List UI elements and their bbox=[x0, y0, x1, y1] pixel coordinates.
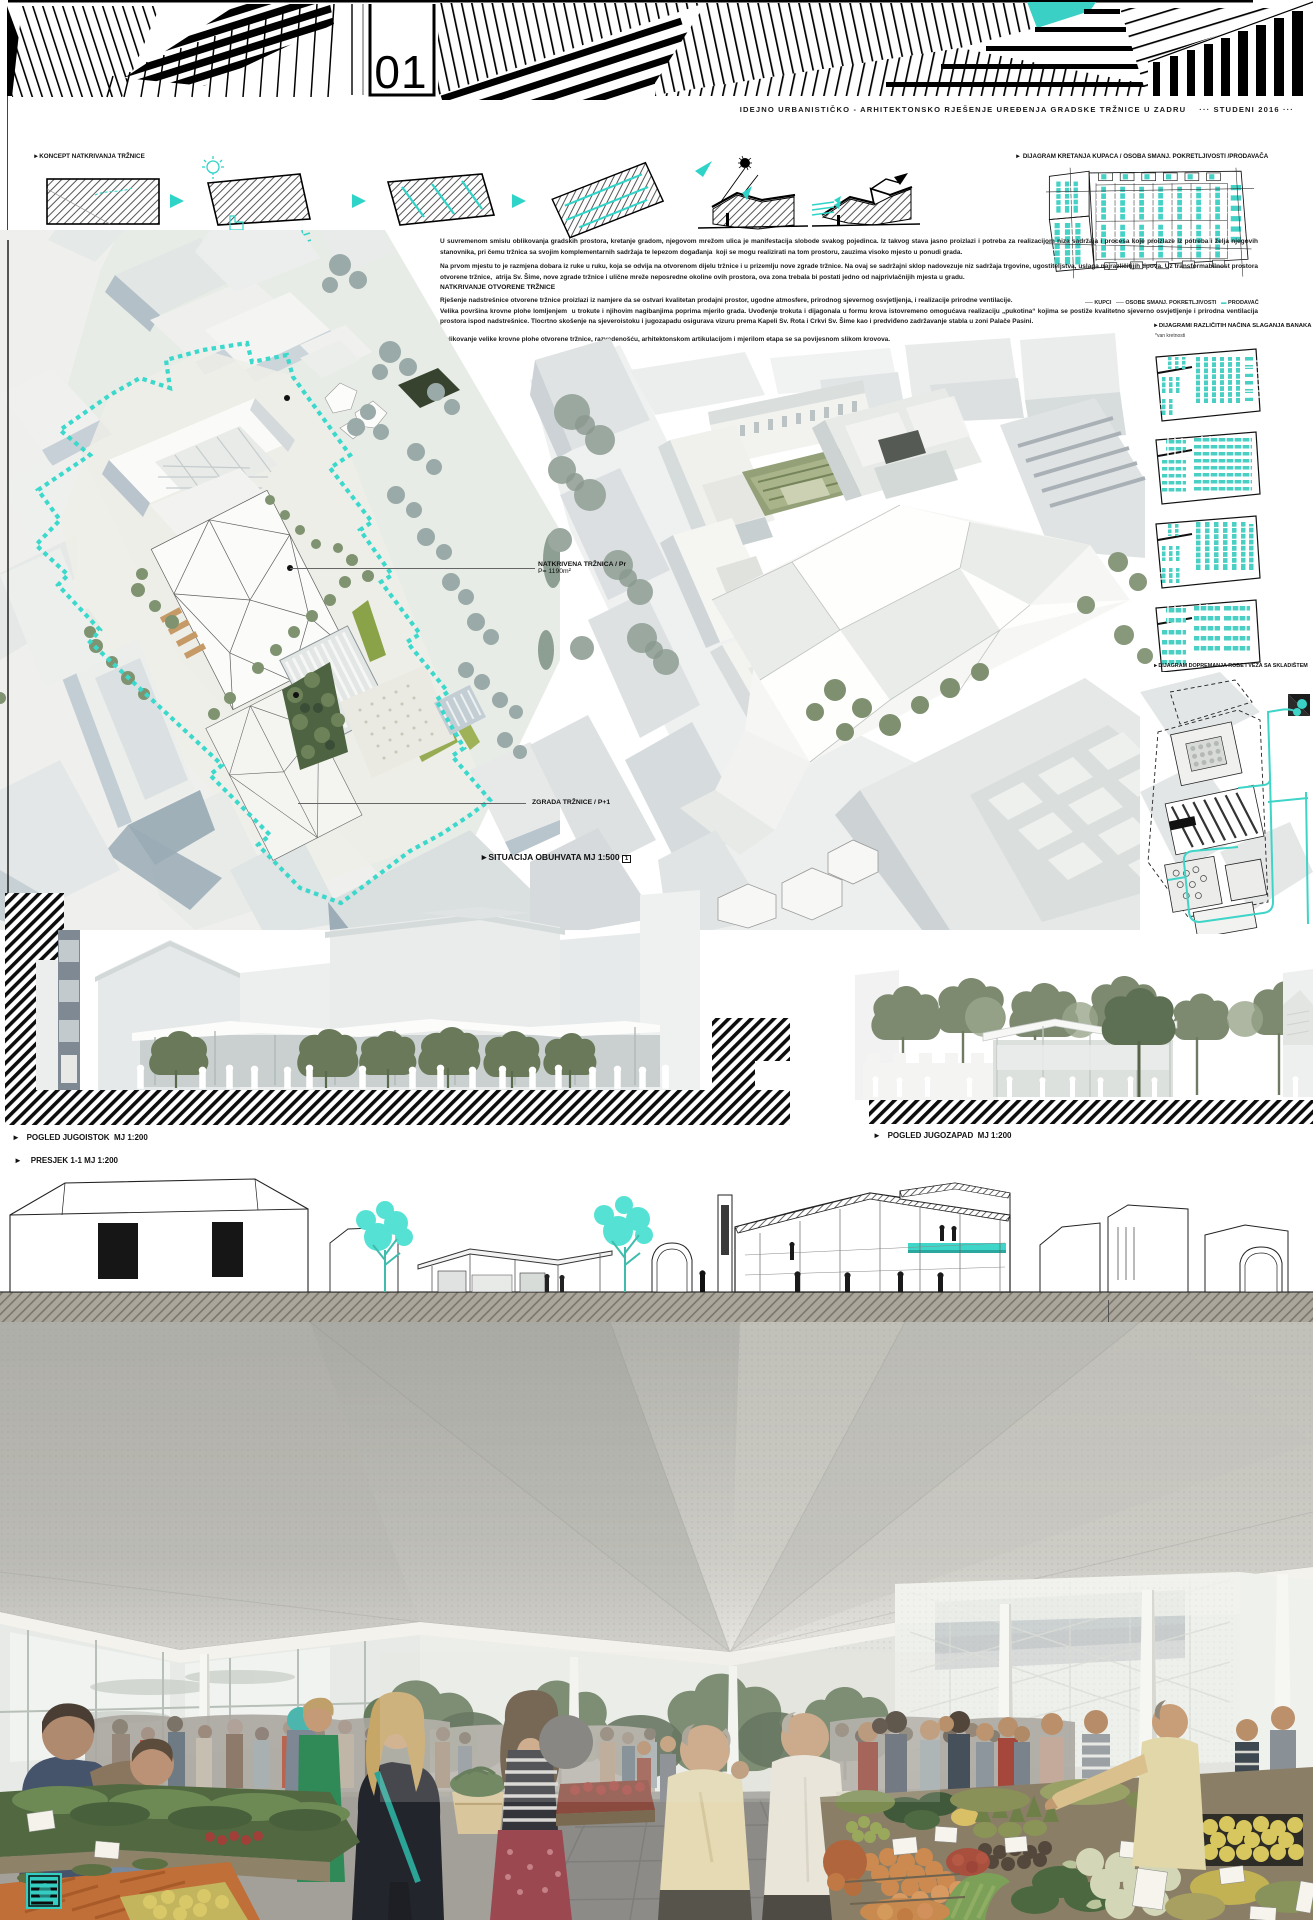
svg-text:01: 01 bbox=[374, 46, 427, 98]
